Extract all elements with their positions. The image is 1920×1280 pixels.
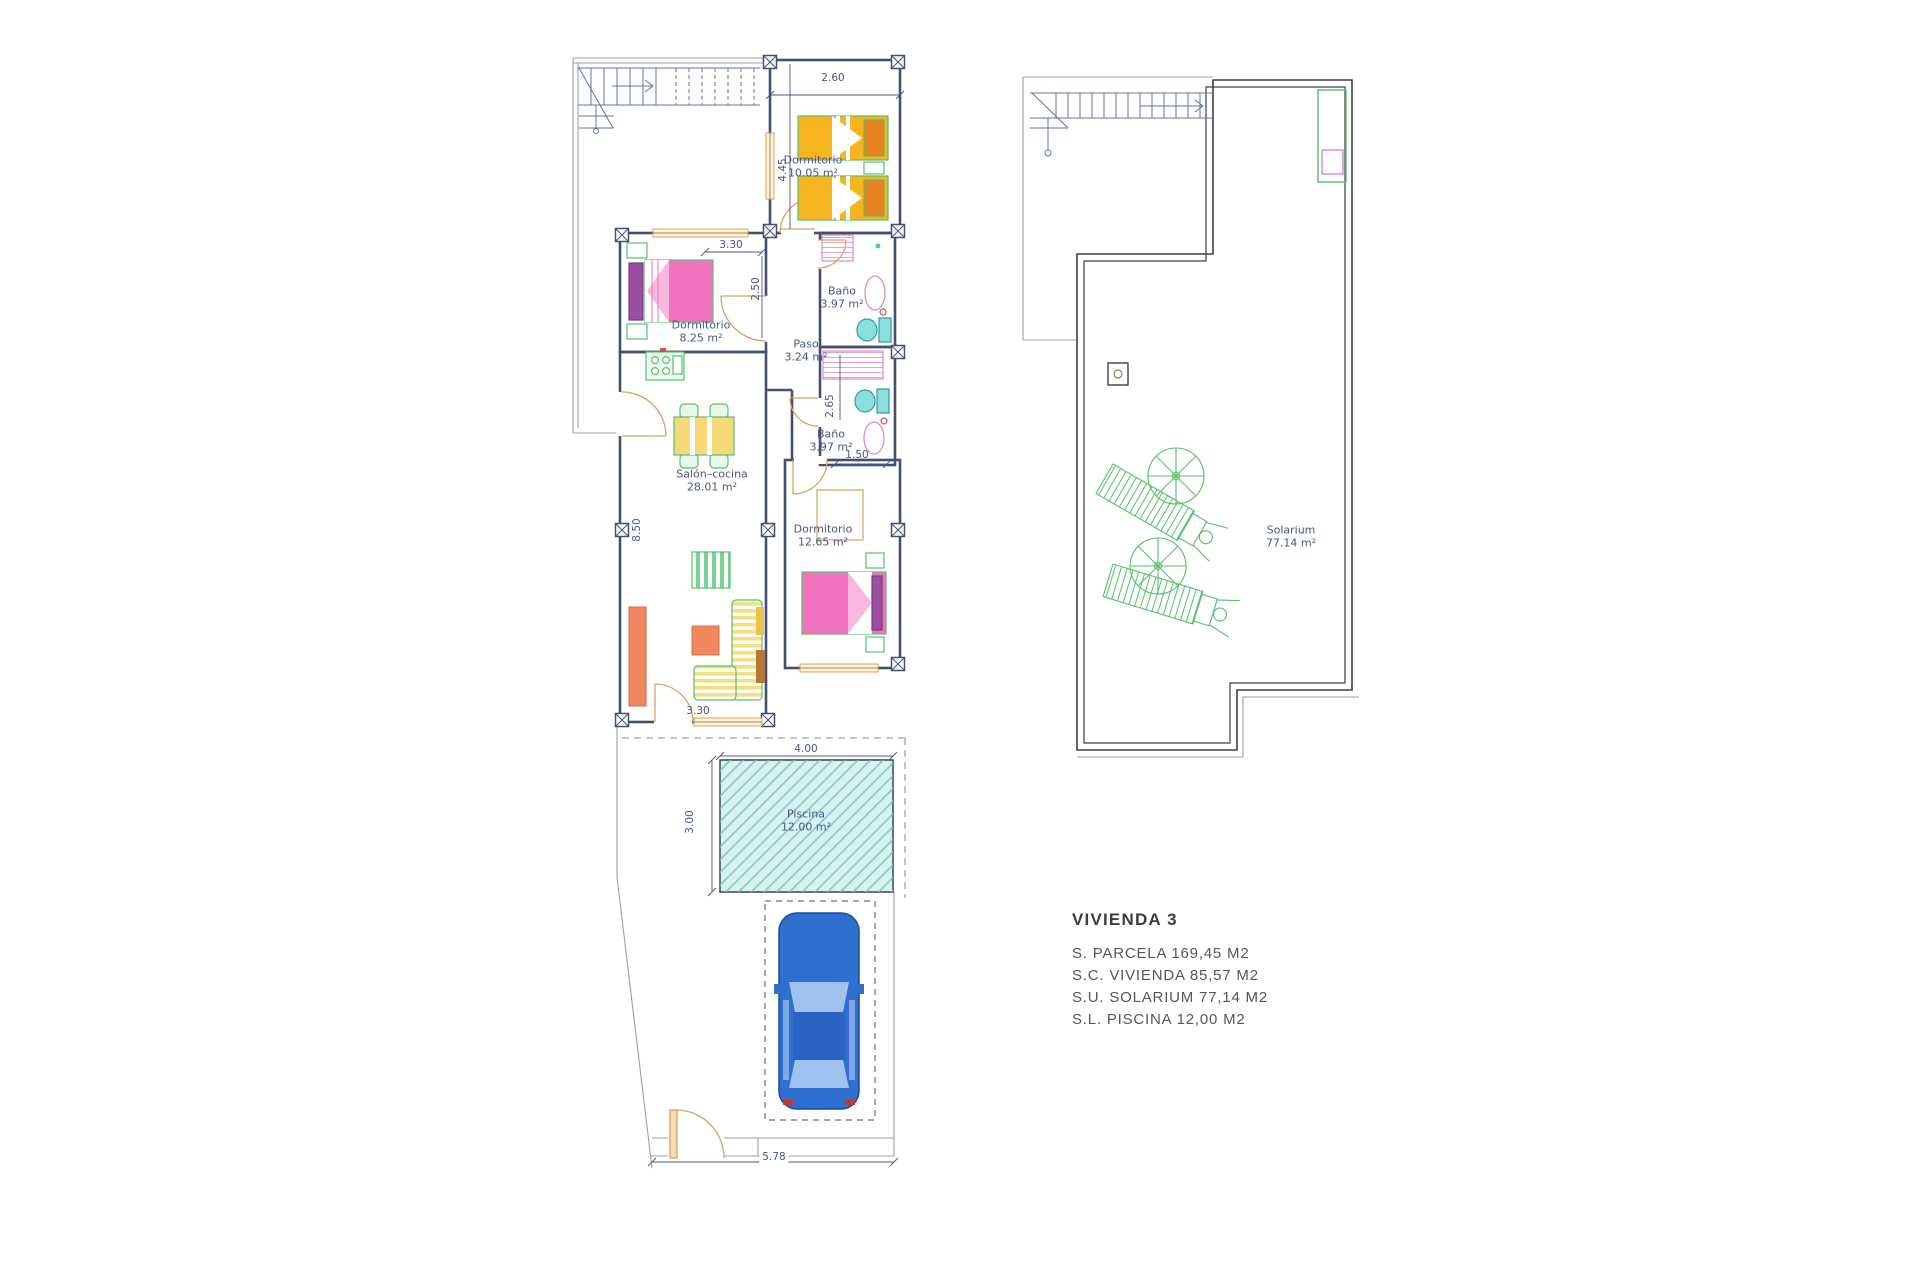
dimension-bedroom2-height: 2.50 [750,277,762,300]
dimension-bedroom2-width: 3.30 [719,239,742,251]
coffee-table-symbol [692,626,719,655]
tv-unit-symbol [692,552,730,588]
title-block-line-vivienda: S.C. VIVIENDA 85,57 M2 [1072,967,1259,984]
dimension-plot-front-width: 5.78 [759,1151,788,1163]
room-label-dormitorio-1: Dormitorio10.05 m² [784,155,843,180]
dimension-pool-width: 4.00 [794,743,817,755]
dimension-bedroom1-width: 2.60 [821,72,844,84]
solarium-boundary [1023,77,1359,757]
sideboard-symbol [629,607,646,706]
room-label-salon-cocina: Salón–cocina28.01 m² [676,469,748,494]
roof-drain-symbol [1108,363,1128,385]
sun-lounger-symbol [1095,462,1228,561]
dimension-bedroom1-height: 4.45 [777,158,789,181]
dimension-salon-height: 8.50 [631,518,643,541]
double-bed-symbol [802,490,886,652]
ground-floor-plan-drawing [550,40,960,1210]
planter-symbol [1318,90,1346,182]
room-label-bano-1: Baño3.97 m² [820,286,863,311]
title-block-line-parcela: S. PARCELA 169,45 M2 [1072,945,1249,962]
room-label-dormitorio-2: Dormitorio8.25 m² [672,320,731,345]
dining-table-symbol [674,404,734,468]
room-label-piscina: Piscina12.00 m² [781,809,831,834]
kitchen-counter-symbol [646,348,684,380]
floor-plan-sheet: Dormitorio10.05 m² Baño3.97 m² Dormitori… [0,0,1920,1280]
room-label-paso: Paso3.24 m² [784,339,827,364]
solarium-walls [1077,80,1352,750]
title-block-line-solarium: S.U. SOLARIUM 77,14 M2 [1072,989,1268,1006]
title-block-line-piscina: S.L. PISCINA 12,00 M2 [1072,1011,1246,1028]
sun-lounger-symbol [1102,562,1239,637]
staircase [578,68,760,134]
room-label-solarium: Solarium77.14 m² [1266,525,1316,550]
solarium-plan-drawing [1005,60,1375,780]
solarium-staircase [1030,93,1213,156]
dimension-pool-height: 3.00 [684,810,696,833]
dimension-bath2-width: 1.50 [845,449,868,461]
room-label-dormitorio-3: Dormitorio12.65 m² [794,524,853,549]
dimension-bath2-height: 2.65 [824,394,836,417]
car-symbol [774,913,864,1109]
title-block-title: VIVIENDA 3 [1072,910,1178,930]
dimension-salon-width: 3.30 [686,705,709,717]
